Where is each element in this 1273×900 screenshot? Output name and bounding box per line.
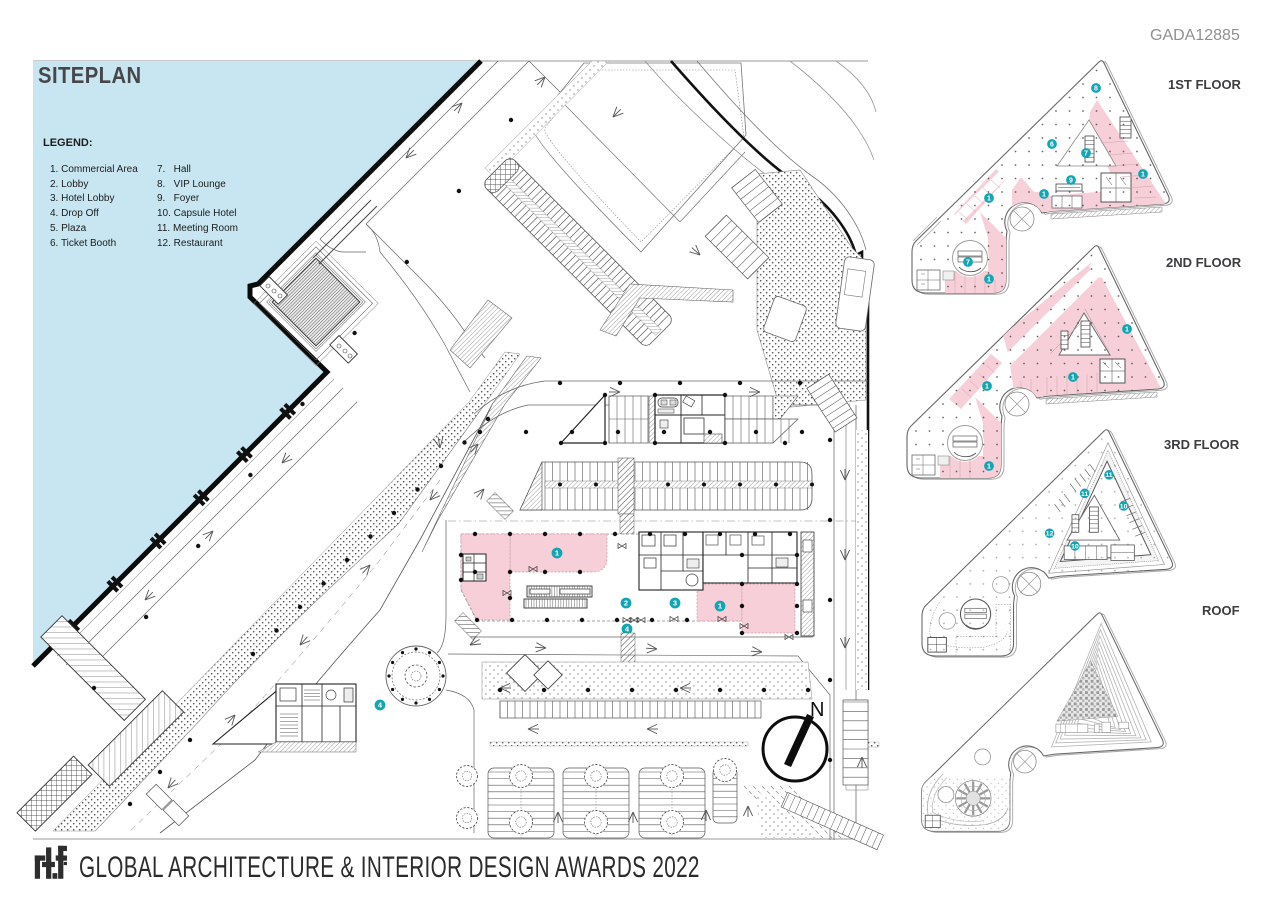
svg-text:11: 11: [1081, 491, 1088, 498]
svg-text:1: 1: [555, 549, 559, 558]
svg-text:2: 2: [624, 599, 628, 608]
svg-text:10: 10: [1071, 543, 1079, 550]
svg-text:11: 11: [1105, 472, 1112, 479]
svg-text:1: 1: [1141, 172, 1145, 179]
svg-text:10: 10: [1120, 503, 1128, 510]
svg-text:1: 1: [987, 196, 991, 203]
svg-text:8: 8: [1094, 86, 1098, 93]
svg-text:1: 1: [987, 277, 991, 284]
svg-text:1: 1: [718, 602, 722, 611]
svg-text:12: 12: [1046, 531, 1054, 538]
svg-text:7: 7: [1084, 151, 1088, 158]
svg-text:7: 7: [966, 260, 970, 267]
svg-text:1: 1: [987, 464, 991, 471]
svg-text:1: 1: [1071, 375, 1075, 382]
svg-text:3: 3: [673, 599, 677, 608]
svg-text:1: 1: [1125, 327, 1129, 334]
svg-text:6: 6: [1050, 142, 1054, 149]
svg-text:N: N: [810, 699, 824, 721]
svg-text:1: 1: [985, 384, 989, 391]
svg-text:9: 9: [1069, 178, 1073, 185]
svg-text:1: 1: [1042, 192, 1046, 199]
